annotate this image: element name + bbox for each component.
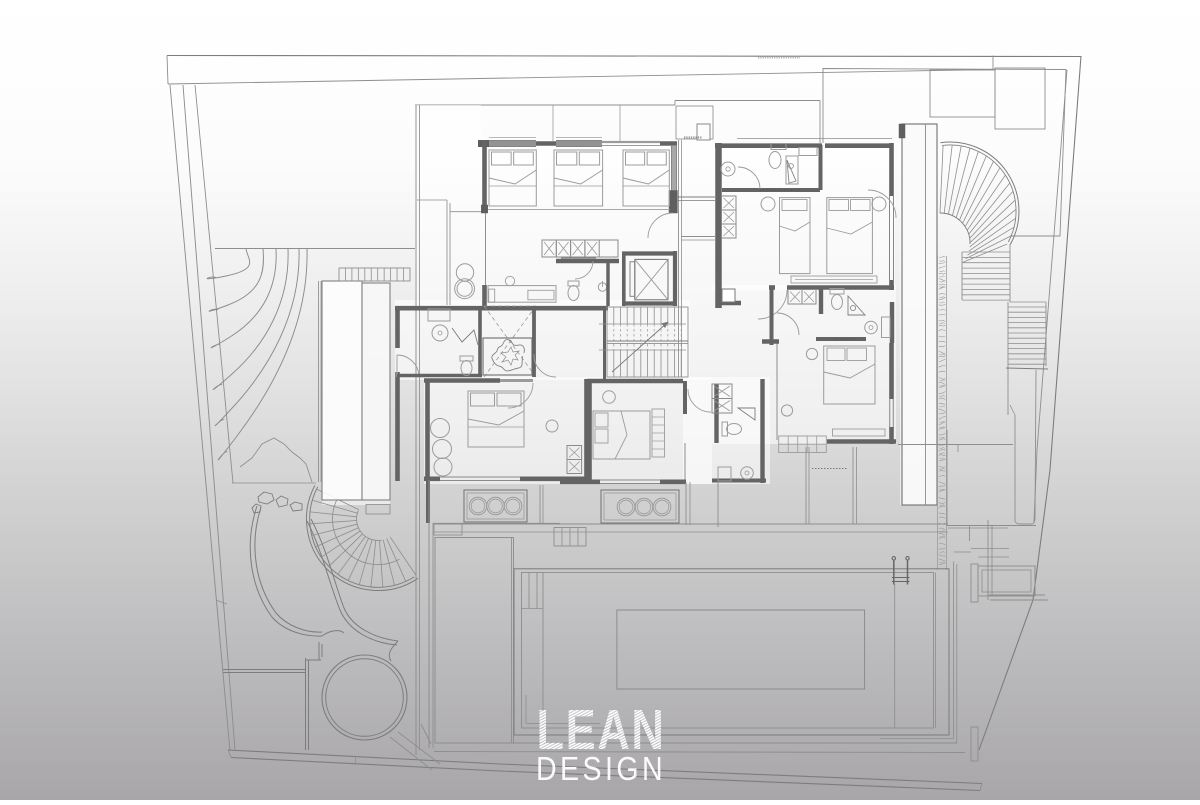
svg-text:DESIGN: DESIGN bbox=[536, 751, 666, 788]
